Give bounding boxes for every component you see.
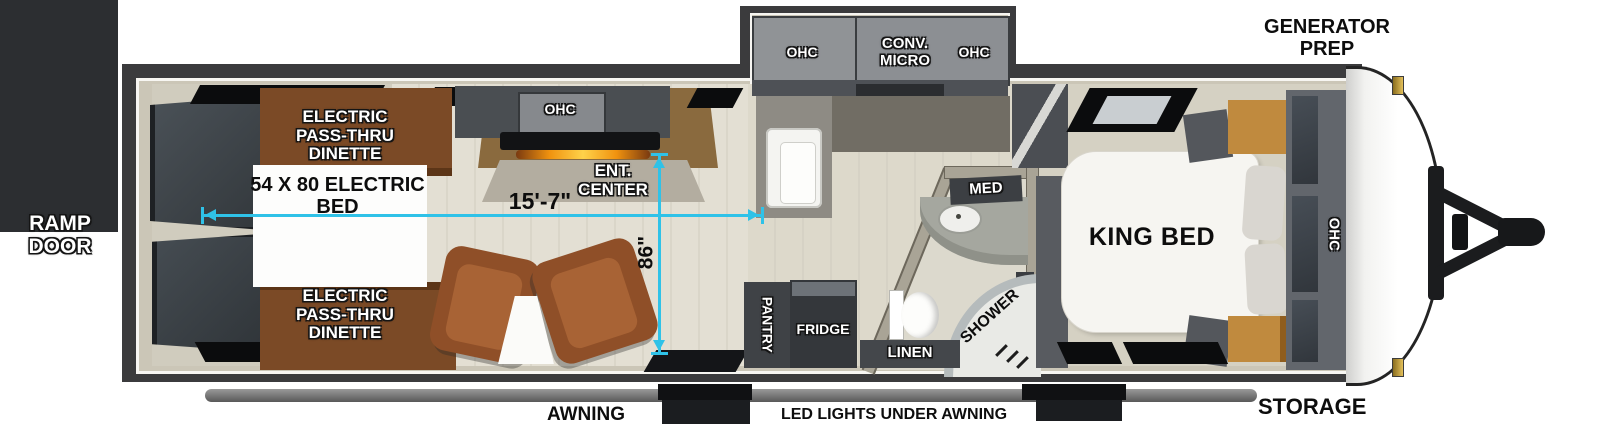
dim-length-line <box>203 214 763 217</box>
nightstand-bottom-tan <box>1228 316 1288 362</box>
dim-width-arrow-top <box>653 157 665 168</box>
dim-length-label: 15'-7" <box>490 189 590 214</box>
closet-top <box>1012 84 1068 168</box>
bed-pillow-bottom <box>1244 243 1288 315</box>
generator-prep-label: GENERATOR PREP <box>1262 16 1392 60</box>
dinette-top-label: ELECTRIC PASS-THRU DINETTE <box>283 108 407 164</box>
dim-length-tick-right <box>761 207 764 224</box>
bed-pillow-top <box>1241 165 1286 242</box>
nightstand-top-gray <box>1183 109 1233 163</box>
kitchen-sink-bowl <box>780 142 816 204</box>
bath-sink <box>938 204 982 234</box>
entry-step-2-bottom <box>1036 400 1122 421</box>
marker-light-top <box>1392 76 1404 95</box>
wardrobe-glass-top <box>1292 96 1318 184</box>
toilet-bowl <box>901 292 939 338</box>
marker-light-bottom <box>1392 358 1404 377</box>
ohc-kitchen-right-label: OHC <box>936 45 1012 60</box>
tv <box>500 132 660 150</box>
floorplan-scene: RAMP DOOR ELECTRIC PASS-THRU DINETTE 54 … <box>0 0 1600 431</box>
awning-label: AWNING <box>536 405 636 426</box>
dim-width-tick-bottom <box>651 352 668 355</box>
electric-bed-label: 54 X 80 ELECTRIC BED <box>250 174 425 218</box>
wardrobe-glass-mid <box>1292 196 1318 292</box>
hitch-jack <box>1452 214 1468 250</box>
hitch-coupler <box>1498 218 1545 246</box>
bedroom-bottom-window-1 <box>1057 342 1122 364</box>
linen-label: LINEN <box>862 345 958 362</box>
dim-length-tick-left <box>201 207 204 224</box>
bath-sink-drain <box>956 214 961 219</box>
fireplace-glow <box>516 150 650 159</box>
fridge-label: FRIDGE <box>790 322 856 337</box>
ramp-door-label: RAMP DOOR <box>8 212 112 258</box>
dim-width-line <box>658 155 661 353</box>
dim-length-arrow-right <box>748 209 759 221</box>
bedroom-bottom-window-2 <box>1123 342 1228 364</box>
king-bed-label: KING BED <box>1072 224 1232 252</box>
dinette-bottom-label: ELECTRIC PASS-THRU DINETTE <box>283 287 407 343</box>
led-lights-label: LED LIGHTS UNDER AWNING <box>764 406 1024 424</box>
fridge-top-face <box>792 282 855 296</box>
entry-step-2-top <box>1022 384 1126 400</box>
wardrobe-glass-bottom <box>1292 300 1318 362</box>
ohc-living-label: OHC <box>520 102 600 117</box>
ohc-kitchen-left-label: OHC <box>762 45 842 60</box>
ohc-bedroom-label: OHC <box>1325 209 1342 259</box>
conv-micro-label: CONV. MICRO <box>872 36 938 69</box>
kitchen-counter <box>832 96 1010 152</box>
pantry-label: PANTRY <box>759 285 774 365</box>
entry-step-1-top <box>658 384 752 400</box>
dim-width-arrow-bottom <box>653 340 665 351</box>
storage-label: STORAGE <box>1258 395 1358 419</box>
dim-length-arrow-left <box>205 209 216 221</box>
dim-width-tick-top <box>651 153 668 156</box>
dim-width-label: 86" <box>634 223 657 283</box>
entry-step-1-bottom <box>662 400 750 424</box>
ramp-door <box>0 0 118 232</box>
